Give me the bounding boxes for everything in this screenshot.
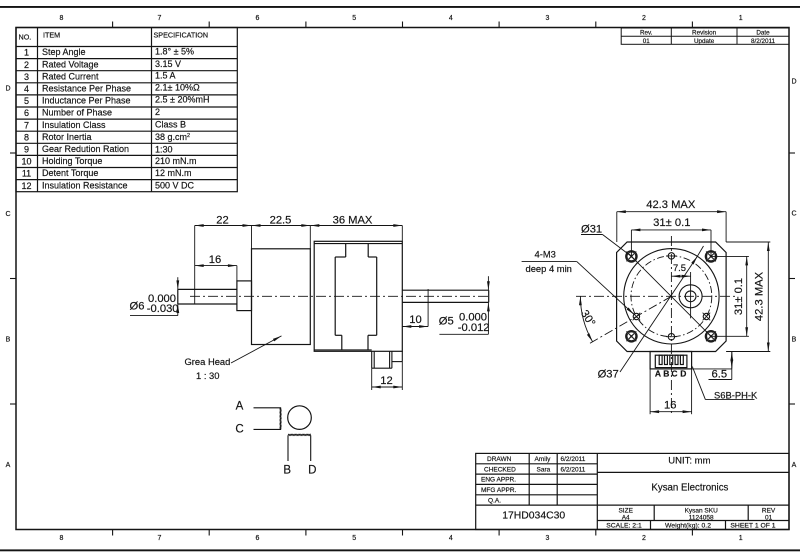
svg-text:6: 6 [256, 535, 260, 542]
svg-text:10: 10 [21, 157, 31, 167]
svg-text:DRAWN: DRAWN [487, 456, 512, 463]
svg-text:D: D [308, 464, 316, 476]
svg-text:B: B [663, 369, 669, 379]
svg-text:31± 0.1: 31± 0.1 [653, 217, 690, 229]
svg-text:8: 8 [60, 535, 64, 542]
svg-text:4-M3: 4-M3 [535, 248, 556, 259]
svg-text:1: 1 [24, 48, 29, 58]
svg-text:2: 2 [642, 15, 646, 22]
svg-text:Sara: Sara [537, 466, 551, 473]
svg-text:REV: REV [762, 507, 776, 514]
svg-text:17HD034C30: 17HD034C30 [502, 511, 565, 522]
svg-text:Kysan SKU: Kysan SKU [685, 507, 719, 514]
svg-text:-0.012: -0.012 [458, 322, 490, 334]
svg-text:Grea Head: Grea Head [185, 356, 231, 367]
svg-text:1: 1 [739, 15, 743, 22]
svg-text:Detent Torque: Detent Torque [42, 168, 98, 178]
svg-text:Revision: Revision [692, 30, 717, 37]
svg-text:-0.030: -0.030 [147, 303, 179, 315]
svg-text:Step Angle: Step Angle [42, 47, 86, 57]
svg-text:D: D [680, 369, 686, 379]
svg-text:Ø31: Ø31 [581, 224, 602, 236]
svg-text:A: A [6, 462, 11, 469]
svg-text:S6B-PH-K: S6B-PH-K [714, 389, 758, 400]
svg-text:3: 3 [545, 535, 549, 542]
svg-text:11: 11 [22, 169, 31, 179]
svg-text:8: 8 [24, 132, 29, 142]
svg-text:Insulation Resistance: Insulation Resistance [42, 180, 128, 190]
svg-text:1.8° ± 5%: 1.8° ± 5% [155, 47, 194, 57]
svg-text:7.5: 7.5 [673, 262, 686, 273]
svg-text:Update: Update [694, 38, 715, 45]
svg-text:7: 7 [24, 120, 29, 130]
svg-text:Ø5: Ø5 [439, 315, 454, 327]
svg-text:ENG APPR.: ENG APPR. [481, 477, 516, 484]
svg-text:A4: A4 [622, 514, 630, 521]
svg-text:SIZE: SIZE [618, 507, 633, 514]
svg-text:A: A [236, 401, 244, 413]
svg-text:8/2/2011: 8/2/2011 [751, 38, 776, 45]
svg-text:6: 6 [256, 15, 260, 22]
svg-text:NO.: NO. [19, 33, 32, 42]
svg-text:Rated Current: Rated Current [42, 71, 99, 81]
svg-text:1124058: 1124058 [689, 514, 714, 521]
svg-text:5: 5 [24, 96, 29, 106]
svg-text:C: C [5, 211, 10, 218]
svg-text:16: 16 [664, 400, 676, 412]
svg-text:6.5: 6.5 [712, 369, 728, 381]
svg-text:Insulation Class: Insulation Class [42, 120, 106, 130]
svg-text:8: 8 [60, 15, 64, 22]
svg-text:Ø6: Ø6 [130, 301, 145, 313]
svg-text:12 mN.m: 12 mN.m [155, 168, 192, 178]
svg-text:2.1± 10%Ω: 2.1± 10%Ω [155, 83, 200, 93]
svg-text:1 : 30: 1 : 30 [196, 370, 219, 381]
svg-text:Amily: Amily [535, 456, 552, 463]
svg-text:5: 5 [352, 535, 356, 542]
svg-text:C: C [791, 211, 796, 218]
svg-text:D: D [791, 79, 796, 86]
svg-text:7: 7 [158, 15, 162, 22]
svg-text:10: 10 [409, 314, 421, 326]
svg-text:1:30: 1:30 [155, 145, 173, 155]
svg-text:42.3 MAX: 42.3 MAX [754, 271, 766, 321]
svg-text:SPECIFICATION: SPECIFICATION [154, 31, 209, 40]
svg-text:Weight(kg): 0.2: Weight(kg): 0.2 [665, 522, 711, 529]
svg-text:2: 2 [24, 60, 29, 70]
svg-text:12: 12 [21, 181, 31, 191]
svg-text:Rated Voltage: Rated Voltage [42, 59, 99, 69]
svg-text:Gear Redution Ration: Gear Redution Ration [42, 144, 129, 154]
svg-text:Date: Date [756, 30, 770, 37]
svg-text:B: B [6, 337, 11, 344]
svg-text:A: A [655, 369, 661, 379]
svg-text:Q.A.: Q.A. [488, 497, 501, 504]
svg-text:22.5: 22.5 [270, 214, 292, 226]
svg-text:36 MAX: 36 MAX [333, 214, 373, 226]
svg-text:6: 6 [24, 108, 29, 118]
svg-text:3: 3 [545, 15, 549, 22]
svg-text:1: 1 [739, 535, 743, 542]
svg-text:SHEET 1 OF 1: SHEET 1 OF 1 [730, 522, 775, 529]
svg-text:Rev.: Rev. [640, 30, 653, 37]
svg-text:38 g.cm2: 38 g.cm2 [155, 132, 190, 142]
svg-text:UNIT: mm: UNIT: mm [668, 455, 710, 466]
svg-text:4: 4 [449, 15, 453, 22]
svg-text:SCALE: 2:1: SCALE: 2:1 [606, 522, 642, 529]
svg-text:MFG APPR.: MFG APPR. [481, 487, 517, 494]
svg-text:A: A [792, 462, 797, 469]
svg-text:2: 2 [642, 535, 646, 542]
svg-text:Kysan Electronics: Kysan Electronics [651, 483, 728, 494]
svg-text:1.5 A: 1.5 A [155, 70, 176, 80]
svg-text:22: 22 [216, 214, 228, 226]
svg-text:3: 3 [24, 72, 29, 82]
svg-text:ITEM: ITEM [43, 31, 60, 40]
svg-text:210 mN.m: 210 mN.m [155, 156, 197, 166]
svg-text:Rotor Inertia: Rotor Inertia [42, 132, 92, 142]
svg-text:3.15 V: 3.15 V [155, 59, 181, 69]
svg-text:B: B [792, 337, 797, 344]
svg-text:6/2/2011: 6/2/2011 [561, 466, 586, 473]
svg-text:Number of Phase: Number of Phase [42, 108, 112, 118]
svg-text:Resistance Per Phase: Resistance Per Phase [42, 84, 131, 94]
svg-text:500 V DC: 500 V DC [155, 180, 195, 190]
svg-text:9: 9 [24, 145, 29, 155]
svg-text:B: B [283, 464, 291, 476]
svg-text:31± 0.1: 31± 0.1 [733, 278, 745, 315]
svg-text:Class B: Class B [155, 119, 186, 129]
svg-text:6/2/2011: 6/2/2011 [561, 456, 586, 463]
svg-text:Inductance Per Phase: Inductance Per Phase [42, 96, 131, 106]
svg-text:01: 01 [643, 38, 651, 45]
svg-text:D: D [5, 86, 10, 93]
svg-text:7: 7 [158, 535, 162, 542]
svg-text:Holding Torque: Holding Torque [42, 156, 102, 166]
svg-text:2.5 ± 20%mH: 2.5 ± 20%mH [155, 95, 209, 105]
svg-text:4: 4 [24, 84, 29, 94]
svg-text:4: 4 [449, 535, 453, 542]
svg-text:C: C [235, 424, 243, 436]
svg-text:12: 12 [380, 375, 392, 387]
svg-text:5: 5 [352, 15, 356, 22]
svg-text:C: C [671, 369, 677, 379]
svg-text:01: 01 [765, 514, 773, 521]
svg-text:42.3 MAX: 42.3 MAX [646, 199, 696, 211]
svg-text:2: 2 [155, 107, 160, 117]
svg-text:CHECKED: CHECKED [484, 466, 516, 473]
svg-text:deep 4 min: deep 4 min [526, 263, 572, 274]
svg-text:Ø37: Ø37 [598, 368, 619, 380]
svg-text:16: 16 [209, 254, 221, 266]
